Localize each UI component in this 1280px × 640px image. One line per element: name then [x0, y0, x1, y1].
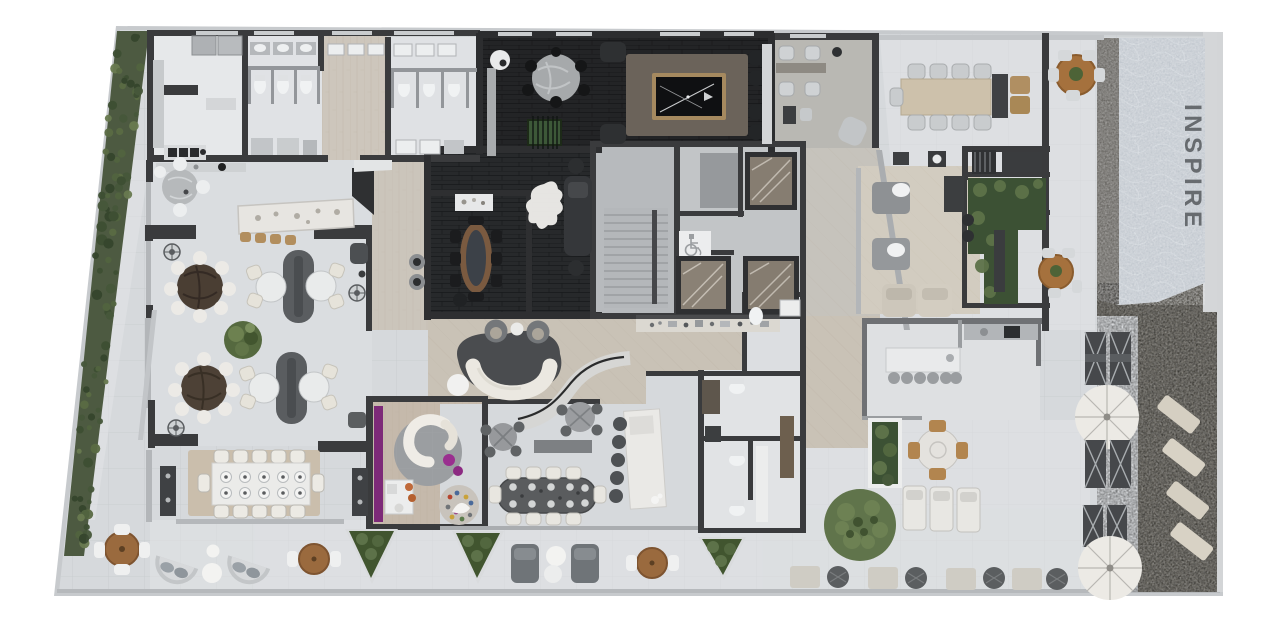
svg-text:INSPIRE: INSPIRE	[1179, 104, 1206, 232]
